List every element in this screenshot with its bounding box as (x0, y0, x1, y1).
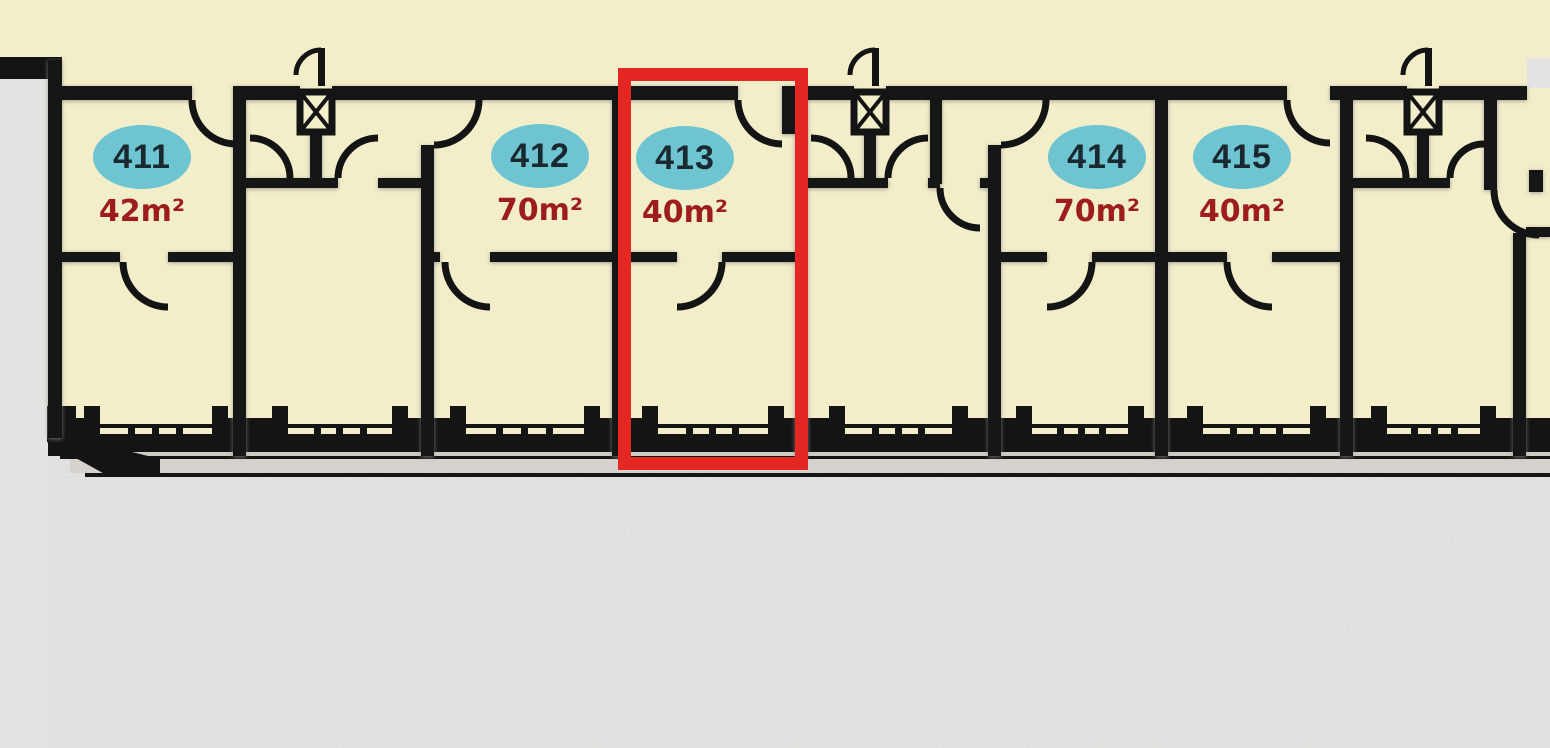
unit-number: 414 (1067, 138, 1127, 177)
unit-411[interactable]: 411 42m² (93, 125, 191, 227)
unit-number: 411 (113, 138, 171, 177)
unit-number-badge[interactable]: 414 (1048, 125, 1146, 189)
unit-area: 70m² (1054, 197, 1140, 227)
unit-area: 70m² (497, 196, 583, 226)
unit-number: 412 (510, 137, 570, 176)
unit-area: 42m² (99, 197, 185, 227)
unit-number: 415 (1212, 138, 1272, 177)
floor-plan: 411 42m² 412 70m² 413 40m² 414 70m² 415 … (0, 0, 1550, 748)
unit-number-badge[interactable]: 411 (93, 125, 191, 189)
unit-area: 40m² (1199, 197, 1285, 227)
unit-number-badge[interactable]: 412 (491, 124, 589, 188)
unit-number-badge[interactable]: 415 (1193, 125, 1291, 189)
selection-highlight (618, 68, 808, 470)
unit-415[interactable]: 415 40m² (1193, 125, 1291, 227)
unit-412[interactable]: 412 70m² (491, 124, 589, 226)
unit-414[interactable]: 414 70m² (1048, 125, 1146, 227)
